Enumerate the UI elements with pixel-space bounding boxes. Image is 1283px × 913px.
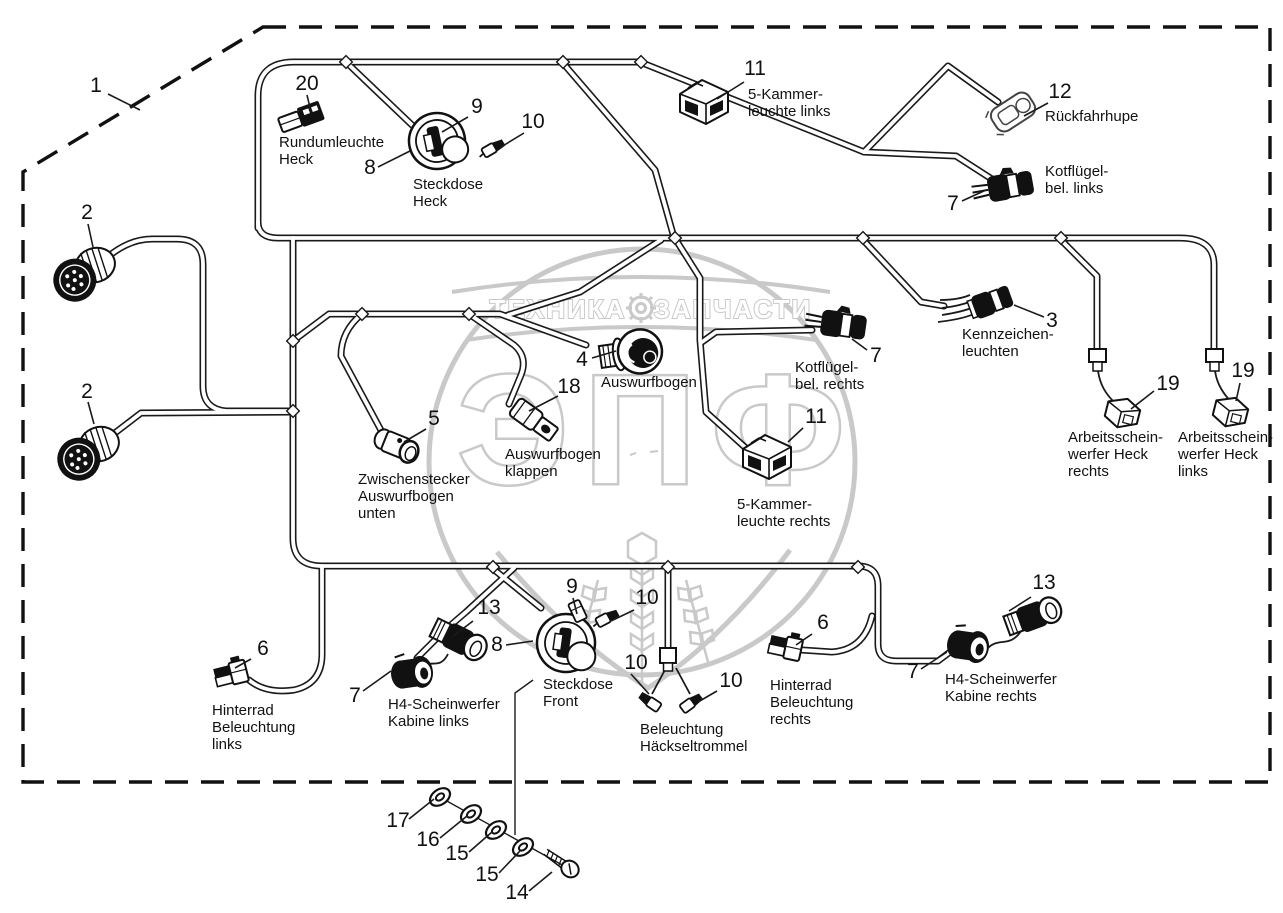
callout-15a: 15 <box>445 842 468 865</box>
washer-icon <box>458 802 485 827</box>
h4-cap-connector-icon <box>428 616 491 664</box>
callout-4: 4 <box>576 348 588 371</box>
callout-19-links: 19 <box>1231 359 1254 382</box>
callout-9-front: 9 <box>566 575 578 598</box>
work-light-connector-icon <box>1211 394 1250 431</box>
ferrule-icon <box>1206 349 1223 371</box>
spade-terminal-icon <box>477 138 506 161</box>
intermediate-connector-icon <box>371 427 422 466</box>
label-hinterrad-links-1: Hinterrad <box>212 702 274 719</box>
callout-10-heck: 10 <box>521 110 544 133</box>
label-arbeitsscheinwerfer-rechts-1: Arbeitsschein- <box>1068 429 1163 446</box>
label-steckdose-front-2: Front <box>543 693 579 710</box>
label-kotfluegel-links-1: Kotflügel- <box>1045 163 1108 180</box>
gear-icon <box>626 293 656 323</box>
label-kammer-rechts-1: 5-Kammer- <box>737 496 812 513</box>
label-auswurfbogen: Auswurfbogen <box>601 374 697 391</box>
label-hinterrad-links-2: Beleuchtung <box>212 719 295 736</box>
label-steckdose-heck-1: Steckdose <box>413 176 483 193</box>
callout-7-h4-links: 7 <box>349 684 361 707</box>
label-arbeitsscheinwerfer-rechts-3: rechts <box>1068 463 1109 480</box>
label-kammer-links-1: 5-Kammer- <box>748 86 823 103</box>
spade-terminal-icon <box>637 691 662 712</box>
callout-14: 14 <box>505 881 529 904</box>
label-auswurfbogen-klappen-1: Auswurfbogen <box>505 446 601 463</box>
label-rundumleuchte-1: Rundumleuchte <box>279 134 384 151</box>
callout-11-links: 11 <box>744 57 766 80</box>
label-haeckseltrommel-2: Häckseltrommel <box>640 738 748 755</box>
label-kennzeichen-2: leuchten <box>962 343 1019 360</box>
label-steckdose-heck-2: Heck <box>413 193 448 210</box>
label-h4-links-2: Kabine links <box>388 713 469 730</box>
label-zwischenstecker-3: unten <box>358 505 396 522</box>
socket-front-icon <box>533 610 600 676</box>
label-rundumleuchte-2: Heck <box>279 151 314 168</box>
callout-15b: 15 <box>475 863 498 886</box>
label-kammer-rechts-2: leuchte rechts <box>737 513 830 530</box>
label-hinterrad-rechts-3: rechts <box>770 711 811 728</box>
callout-20: 20 <box>295 72 318 95</box>
h4-cap-connector-icon <box>1002 594 1064 638</box>
callout-7-kotfluegel-rechts: 7 <box>870 344 882 367</box>
label-kotfluegel-rechts-1: Kotflügel- <box>795 359 858 376</box>
watermark-text-zapchasti: ЗАПЧАСТИ <box>654 294 813 324</box>
label-kennzeichen-1: Kennzeichen- <box>962 326 1054 343</box>
diagram-canvas: ТЕХНИКА ЗАПЧАСТИ Э П Ф <box>0 0 1283 913</box>
label-h4-rechts-2: Kabine rechts <box>945 688 1037 705</box>
h4-connector-icon <box>388 650 435 691</box>
license-plate-connector-icon <box>966 284 1015 321</box>
callout-2-unten: 2 <box>81 380 93 403</box>
callout-7-h4-rechts: 7 <box>907 660 919 683</box>
callout-16: 16 <box>416 828 439 851</box>
label-steckdose-front-1: Steckdose <box>543 676 613 693</box>
label-rueckfahrhupe: Rückfahrhupe <box>1045 108 1138 125</box>
ferrule-icon <box>1089 349 1106 371</box>
label-haeckseltrommel-1: Beleuchtung <box>640 721 723 738</box>
socket-heck-icon <box>404 108 471 175</box>
wiring-harness-diagram: ТЕХНИКА ЗАПЧАСТИ Э П Ф <box>0 0 1283 913</box>
label-zwischenstecker-1: Zwischenstecker <box>358 471 470 488</box>
callout-10-trommel-links: 10 <box>624 651 647 674</box>
callout-7-kotfluegel-links: 7 <box>947 192 959 215</box>
spade-terminal-icon <box>679 692 703 714</box>
callout-13-rechts: 13 <box>1032 571 1055 594</box>
callout-6-rechts: 6 <box>817 611 829 634</box>
label-hinterrad-links-3: links <box>212 736 242 753</box>
callout-19-rechts: 19 <box>1156 372 1179 395</box>
callout-13-links: 13 <box>477 596 500 619</box>
beacon-connector-icon <box>277 101 325 135</box>
label-auswurfbogen-klappen-2: klappen <box>505 463 558 480</box>
h4-connector-icon <box>945 623 992 664</box>
rear-wheel-connector-icon <box>211 655 249 689</box>
callout-5: 5 <box>428 407 440 430</box>
callout-17: 17 <box>386 809 409 832</box>
washer-icon <box>483 818 510 843</box>
callout-8-heck: 8 <box>364 156 376 179</box>
callout-9-heck: 9 <box>471 95 483 118</box>
callout-12: 12 <box>1048 80 1071 103</box>
nut-icon <box>427 785 454 810</box>
chamber-connector-icon <box>680 80 728 124</box>
label-arbeitsscheinwerfer-links-2: werfer Heck <box>1177 446 1259 463</box>
callout-6-links: 6 <box>257 637 269 660</box>
callout-10-trommel-rechts: 10 <box>719 669 742 692</box>
callout-11-rechts: 11 <box>805 405 827 428</box>
callout-2-oben: 2 <box>81 201 93 224</box>
label-kotfluegel-links-2: bel. links <box>1045 180 1103 197</box>
label-hinterrad-rechts-1: Hinterrad <box>770 677 832 694</box>
callout-8-front: 8 <box>491 633 503 656</box>
callout-10-front: 10 <box>635 586 658 609</box>
callout-1: 1 <box>90 74 102 97</box>
label-h4-links-1: H4-Scheinwerfer <box>388 696 500 713</box>
callout-18: 18 <box>557 375 580 398</box>
label-zwischenstecker-2: Auswurfbogen <box>358 488 454 505</box>
label-arbeitsscheinwerfer-links-1: Arbeitsschein- <box>1178 429 1273 446</box>
work-light-connector-icon <box>1103 395 1142 432</box>
label-hinterrad-rechts-2: Beleuchtung <box>770 694 853 711</box>
label-h4-rechts-1: H4-Scheinwerfer <box>945 671 1057 688</box>
label-kammer-links-2: leuchte links <box>748 103 831 120</box>
label-kotfluegel-rechts-2: bel. rechts <box>795 376 864 393</box>
label-arbeitsscheinwerfer-rechts-2: werfer Heck <box>1067 446 1149 463</box>
label-arbeitsscheinwerfer-links-3: links <box>1178 463 1208 480</box>
